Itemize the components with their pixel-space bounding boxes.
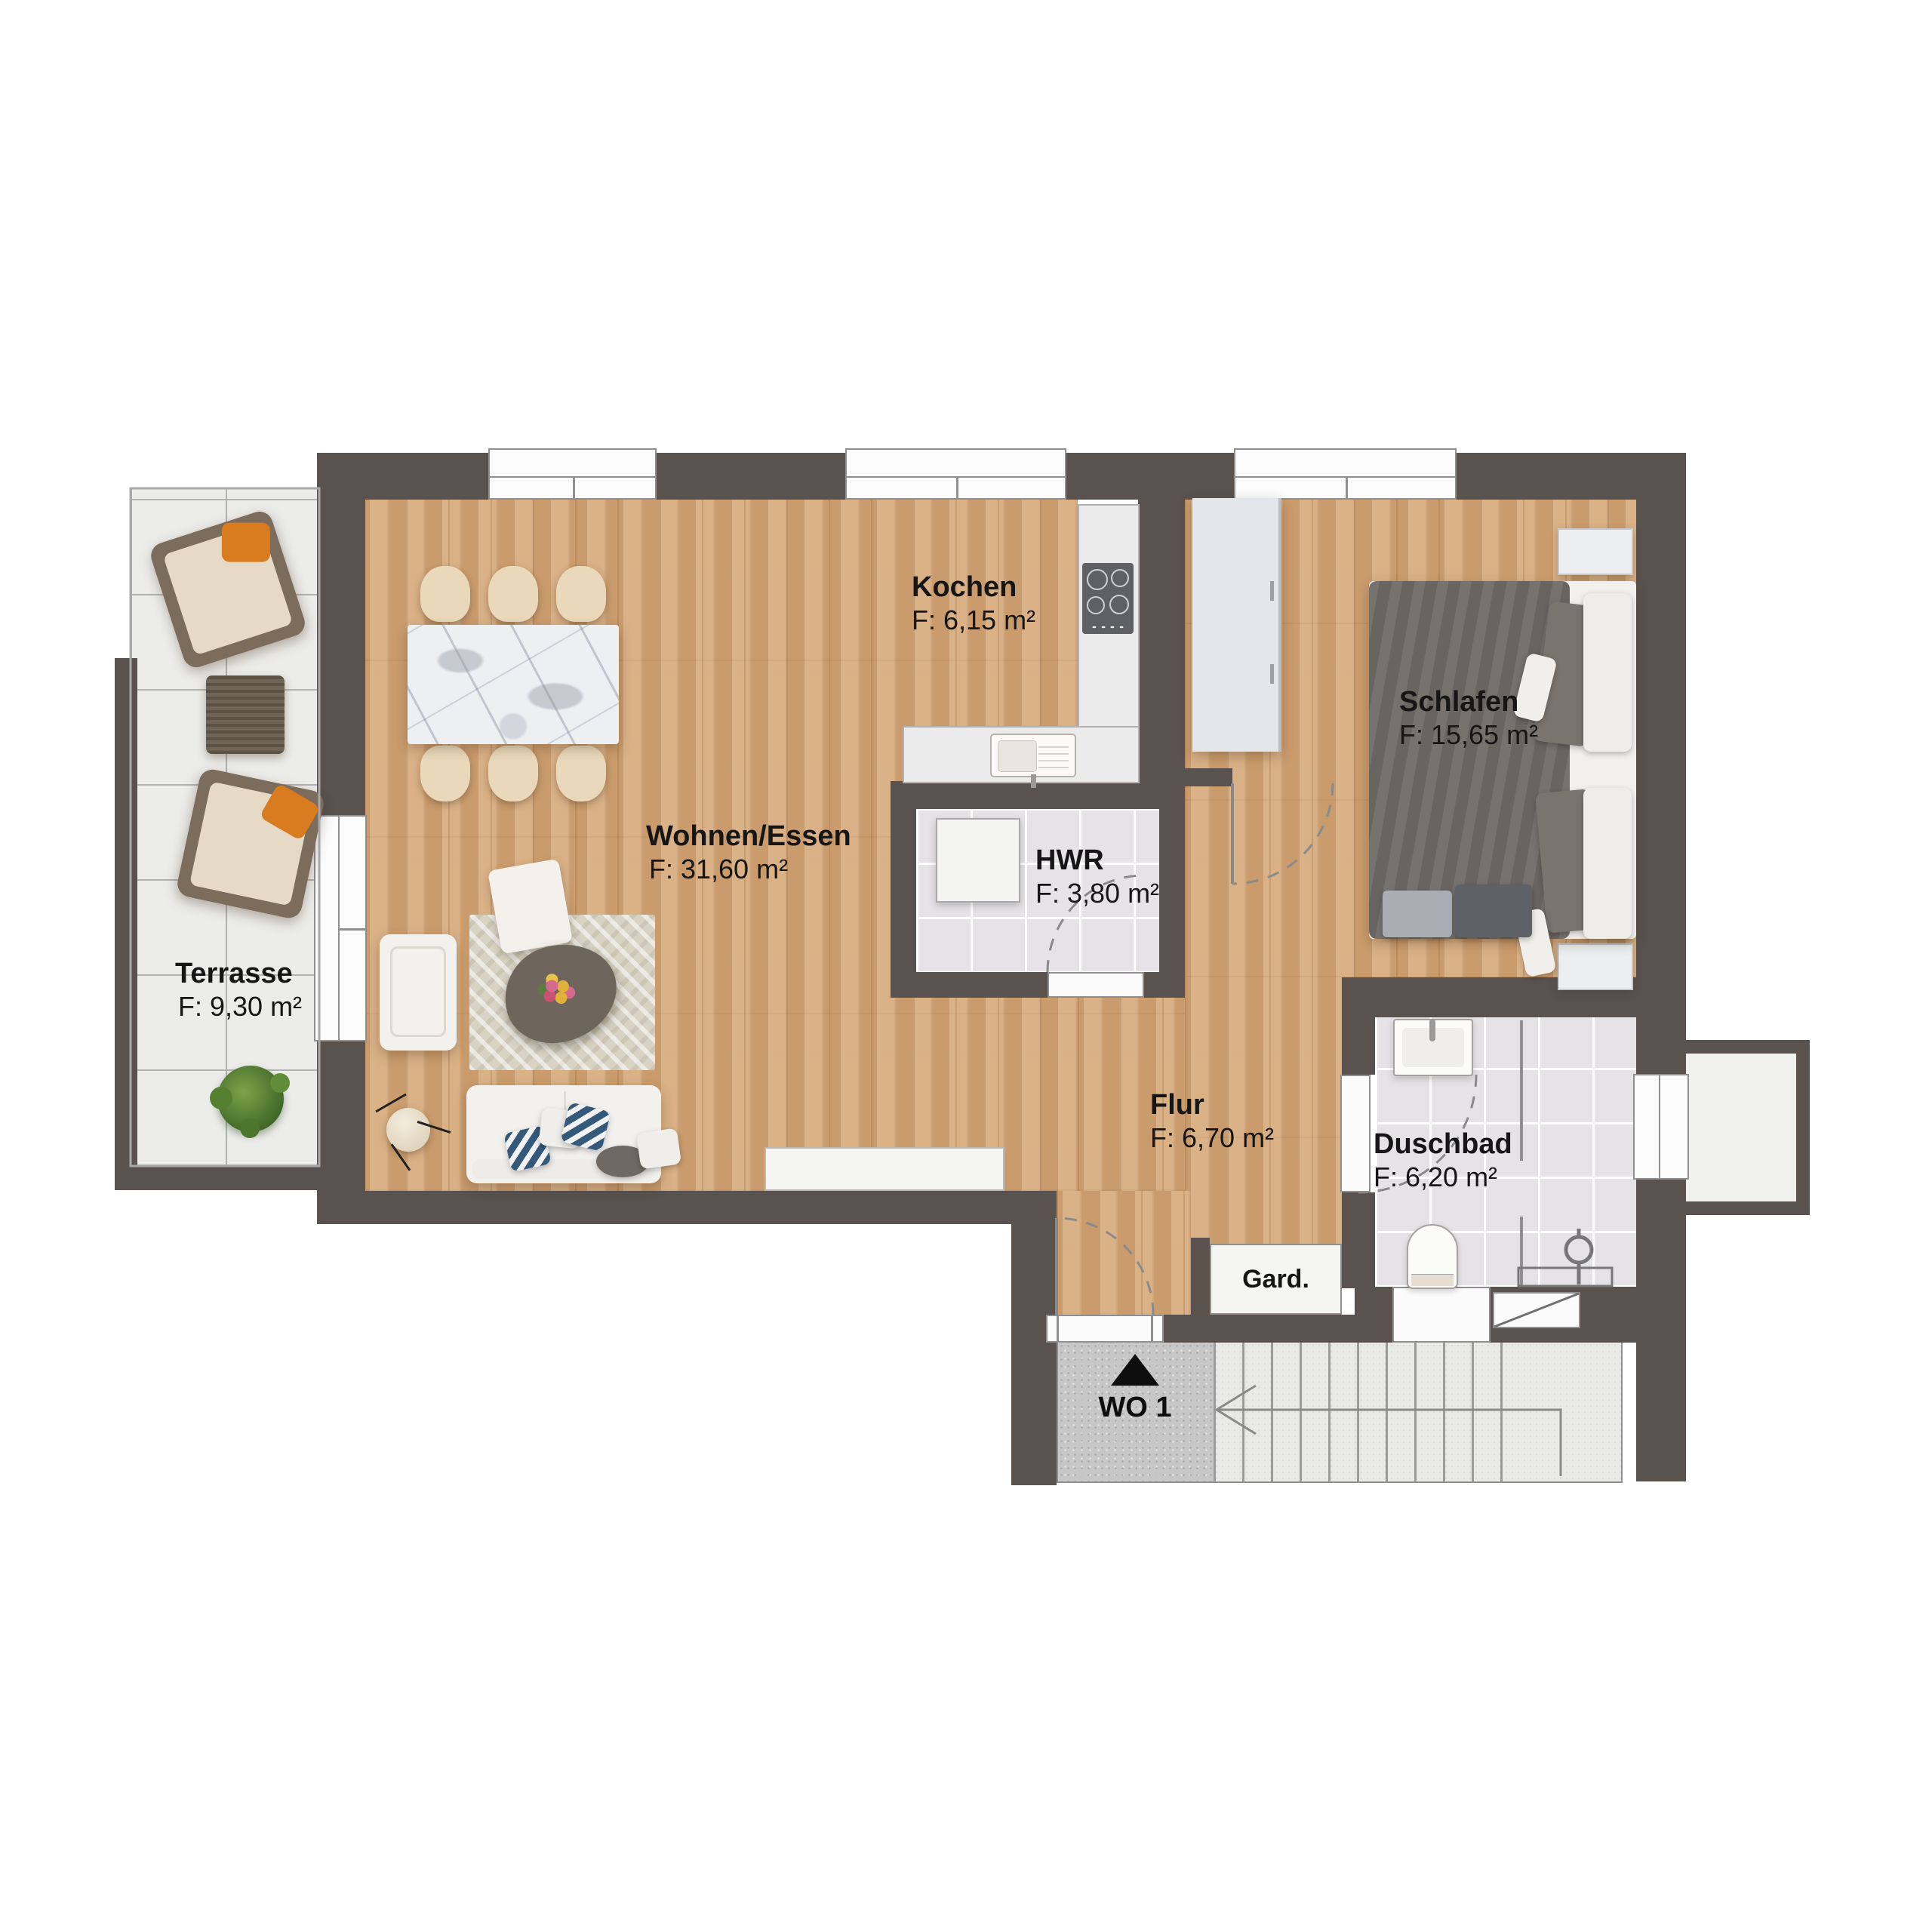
cooktop-knobs bbox=[1090, 625, 1126, 629]
hall-south-floor bbox=[1057, 1191, 1191, 1316]
wall-hwr-west bbox=[891, 781, 916, 998]
window-mullion bbox=[1346, 476, 1348, 498]
label-utility-area: F: 3,80 m² bbox=[1035, 877, 1159, 910]
armchair-cushion bbox=[390, 946, 446, 1037]
label-bathroom-area: F: 6,20 m² bbox=[1374, 1161, 1497, 1194]
terrace-plant bbox=[217, 1066, 284, 1132]
unit-label: WO 1 bbox=[1081, 1392, 1189, 1424]
terrace-wall-south bbox=[115, 1166, 365, 1190]
sink-tap bbox=[1429, 1019, 1435, 1041]
dining-chair bbox=[556, 746, 606, 801]
wall-hwr-south-left bbox=[891, 972, 1048, 998]
sideboard bbox=[764, 1147, 1004, 1191]
bedroom-wardrobe bbox=[1192, 498, 1281, 752]
wall-bedroom-west bbox=[1138, 453, 1185, 770]
bath-south-window bbox=[1392, 1287, 1491, 1343]
plant-leaf bbox=[270, 1073, 290, 1093]
wall-gard-south bbox=[1191, 1315, 1355, 1343]
wall-bath-west-upper bbox=[1342, 977, 1375, 1075]
wall-west-upper bbox=[317, 453, 365, 815]
wall-hwr-south-right bbox=[1144, 972, 1185, 998]
burner bbox=[1109, 595, 1129, 614]
plant-leaf bbox=[240, 1118, 260, 1138]
bathroom-sink bbox=[1393, 1019, 1473, 1076]
bed-pillow-white bbox=[1583, 593, 1632, 752]
knit-blanket-dark bbox=[1455, 884, 1532, 937]
label-hall-area: F: 6,70 m² bbox=[1150, 1121, 1274, 1155]
wall-gard-west bbox=[1191, 1238, 1210, 1316]
cooktop bbox=[1082, 563, 1134, 634]
label-bedroom-name: Schlafen bbox=[1399, 685, 1518, 718]
burner bbox=[1087, 569, 1108, 590]
floor-plan-canvas: Gard. WO 1 Terrasse F: 9,30 m² Wohnen/Es… bbox=[0, 0, 1932, 1932]
dining-table bbox=[408, 625, 619, 744]
label-terrace-name: Terrasse bbox=[175, 957, 293, 990]
label-hall-name: Flur bbox=[1150, 1088, 1204, 1121]
label-bedroom-area: F: 15,65 m² bbox=[1399, 718, 1538, 752]
terrace-wall-west bbox=[115, 658, 137, 1168]
wall-bath-north bbox=[1342, 977, 1686, 1017]
flower-bouquet bbox=[545, 979, 559, 993]
door-frame-line bbox=[1057, 1316, 1059, 1341]
bathroom-door-panel bbox=[1340, 1075, 1371, 1192]
toilet bbox=[1407, 1224, 1458, 1289]
terrace-side-table bbox=[206, 675, 285, 754]
installation-shaft bbox=[1493, 1292, 1580, 1328]
window-bathroom bbox=[1633, 1074, 1689, 1180]
sink-basin bbox=[998, 740, 1037, 772]
washing-machine bbox=[936, 818, 1020, 903]
dining-chair bbox=[420, 566, 470, 622]
toilet-lid-line bbox=[1411, 1274, 1454, 1275]
entrance-arrow-icon bbox=[1111, 1354, 1159, 1386]
wall-bath-west-lower bbox=[1342, 1192, 1375, 1288]
white-pillow bbox=[636, 1128, 681, 1169]
entrance-door-opening bbox=[1046, 1315, 1164, 1343]
niche-interior bbox=[1686, 1054, 1796, 1201]
window-mullion bbox=[338, 928, 365, 931]
armchair bbox=[380, 934, 457, 1051]
dining-chair bbox=[420, 746, 470, 801]
window-living-1 bbox=[488, 448, 657, 500]
wardrobe-handle bbox=[1270, 581, 1274, 601]
window-mullion bbox=[956, 476, 958, 498]
dining-chair bbox=[488, 566, 538, 622]
wall-hwr-north bbox=[891, 781, 1185, 809]
orange-pillow bbox=[222, 523, 270, 562]
utility-door-panel bbox=[1048, 972, 1144, 998]
burner bbox=[1111, 569, 1129, 587]
window-kitchen bbox=[845, 448, 1066, 500]
label-living-area: F: 31,60 m² bbox=[649, 853, 788, 886]
nightstand bbox=[1558, 943, 1633, 990]
window-bedroom bbox=[1234, 448, 1457, 500]
sink-drainboard bbox=[1038, 744, 1069, 768]
wall-north-2 bbox=[657, 453, 845, 500]
wall-east-lower bbox=[1636, 1180, 1686, 1481]
terrace-lounge-chair-2 bbox=[175, 767, 326, 920]
bed-pillow-white bbox=[1583, 788, 1632, 939]
wall-entrance-left bbox=[1011, 1315, 1048, 1343]
label-kitchen-area: F: 6,15 m² bbox=[912, 604, 1035, 637]
window-mullion bbox=[573, 476, 575, 498]
kitchen-sink bbox=[990, 734, 1076, 777]
exterior-mask bbox=[317, 1224, 1011, 1496]
wall-south-living bbox=[317, 1191, 1020, 1224]
label-kitchen-name: Kochen bbox=[912, 571, 1017, 604]
wardrobe-handle bbox=[1270, 664, 1274, 684]
dining-chair bbox=[556, 566, 606, 622]
label-terrace-area: F: 9,30 m² bbox=[178, 990, 302, 1023]
label-living-name: Wohnen/Essen bbox=[646, 820, 851, 853]
wall-hwr-east bbox=[1159, 781, 1185, 998]
burner bbox=[1087, 596, 1105, 614]
coat-closet-label: Gard. bbox=[1210, 1244, 1342, 1315]
label-bathroom-name: Duschbad bbox=[1374, 1128, 1512, 1161]
plant-leaf bbox=[210, 1087, 232, 1109]
dining-chair bbox=[488, 746, 538, 801]
knit-blanket-light bbox=[1383, 891, 1452, 937]
throw-blanket bbox=[488, 859, 573, 955]
toilet-cistern bbox=[1411, 1276, 1454, 1286]
sink-faucet bbox=[1031, 774, 1036, 788]
door-frame-line bbox=[1151, 1316, 1153, 1341]
label-utility-name: HWR bbox=[1035, 844, 1104, 877]
window-frame-line bbox=[1659, 1075, 1660, 1178]
terrace-door bbox=[314, 815, 367, 1041]
nightstand bbox=[1558, 528, 1633, 575]
